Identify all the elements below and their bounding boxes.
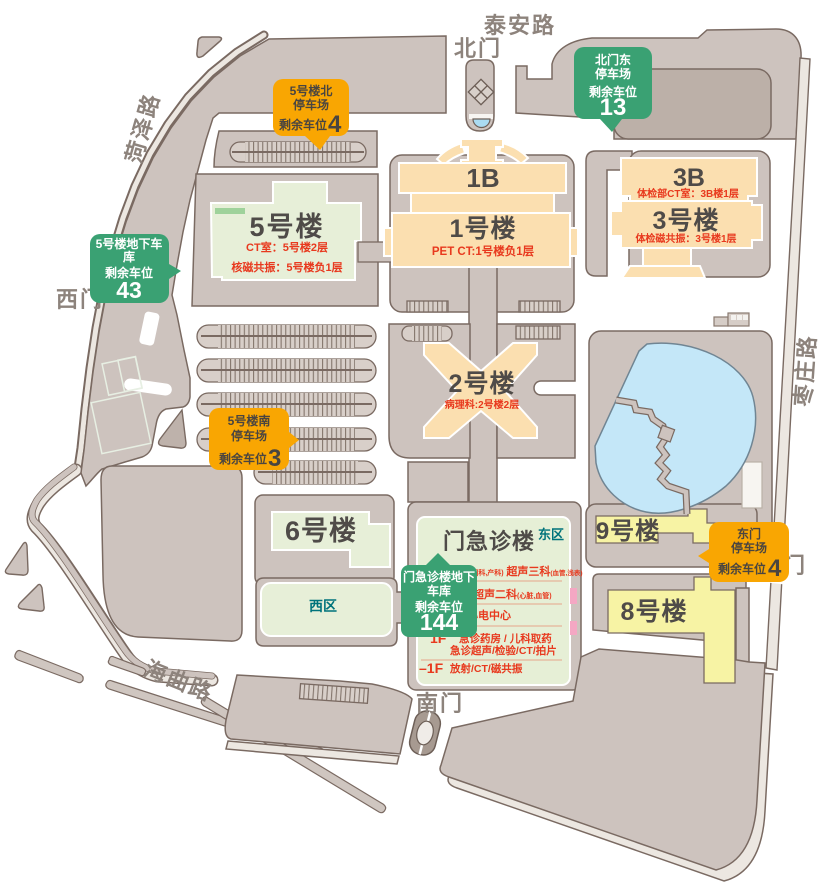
svg-text:停车场: 停车场 bbox=[731, 540, 767, 555]
svg-text:3B: 3B bbox=[673, 164, 705, 192]
svg-text:3号楼: 3号楼 bbox=[653, 207, 720, 235]
svg-text:5号楼: 5号楼 bbox=[249, 212, 324, 242]
svg-text:放射/CT/磁共振: 放射/CT/磁共振 bbox=[449, 662, 523, 675]
svg-text:43: 43 bbox=[116, 277, 142, 303]
svg-text:库: 库 bbox=[123, 249, 135, 264]
svg-text:4: 4 bbox=[768, 555, 782, 582]
svg-text:门急诊楼地下: 门急诊楼地下 bbox=[403, 569, 475, 584]
svg-text:剩余车位: 剩余车位 bbox=[219, 451, 267, 466]
svg-text:门急诊楼: 门急诊楼 bbox=[443, 529, 535, 554]
svg-text:4: 4 bbox=[328, 111, 342, 138]
svg-text:病理科:2号楼2层: 病理科:2号楼2层 bbox=[445, 398, 519, 411]
svg-text:停车场: 停车场 bbox=[595, 66, 631, 81]
svg-text:东区: 东区 bbox=[538, 527, 564, 542]
svg-text:西区: 西区 bbox=[309, 598, 337, 614]
svg-text:2号楼: 2号楼 bbox=[449, 370, 516, 398]
svg-text:南门: 南门 bbox=[416, 691, 464, 716]
svg-text:北门: 北门 bbox=[454, 36, 502, 61]
svg-text:3: 3 bbox=[268, 445, 281, 472]
svg-text:5号楼南: 5号楼南 bbox=[228, 413, 271, 428]
svg-text:9号楼: 9号楼 bbox=[596, 518, 660, 545]
svg-text:体检部CT室：3B楼1层: 体检部CT室：3B楼1层 bbox=[637, 187, 739, 200]
svg-text:1号楼: 1号楼 bbox=[450, 215, 517, 243]
svg-text:5号楼地下车: 5号楼地下车 bbox=[96, 236, 163, 251]
svg-text:停车场: 停车场 bbox=[231, 428, 267, 443]
svg-text:北门东: 北门东 bbox=[595, 52, 631, 67]
svg-text:–1F: –1F bbox=[419, 660, 444, 676]
svg-text:6号楼: 6号楼 bbox=[285, 516, 357, 546]
svg-text:枣庄路: 枣庄路 bbox=[790, 334, 820, 409]
svg-text:剩余车位: 剩余车位 bbox=[718, 561, 766, 576]
svg-text:CT室：5号楼2层: CT室：5号楼2层 bbox=[246, 240, 328, 254]
svg-text:车库: 车库 bbox=[427, 583, 451, 598]
svg-text:13: 13 bbox=[600, 94, 627, 121]
svg-text:PET CT:1号楼负1层: PET CT:1号楼负1层 bbox=[432, 244, 535, 258]
svg-text:剩余车位: 剩余车位 bbox=[279, 117, 327, 132]
svg-text:泰安路: 泰安路 bbox=[483, 13, 556, 38]
svg-text:急诊超声/检验/CT/拍片: 急诊超声/检验/CT/拍片 bbox=[450, 644, 557, 657]
svg-text:东门: 东门 bbox=[737, 526, 761, 541]
svg-text:5号楼北: 5号楼北 bbox=[290, 83, 333, 98]
svg-text:停车场: 停车场 bbox=[293, 97, 329, 112]
svg-text:核磁共振：5号楼负1层: 核磁共振：5号楼负1层 bbox=[231, 260, 342, 274]
svg-text:1B: 1B bbox=[466, 163, 499, 193]
svg-text:体检磁共振：3号楼1层: 体检磁共振：3号楼1层 bbox=[635, 232, 736, 245]
svg-text:8号楼: 8号楼 bbox=[621, 598, 688, 626]
svg-text:144: 144 bbox=[420, 609, 459, 635]
